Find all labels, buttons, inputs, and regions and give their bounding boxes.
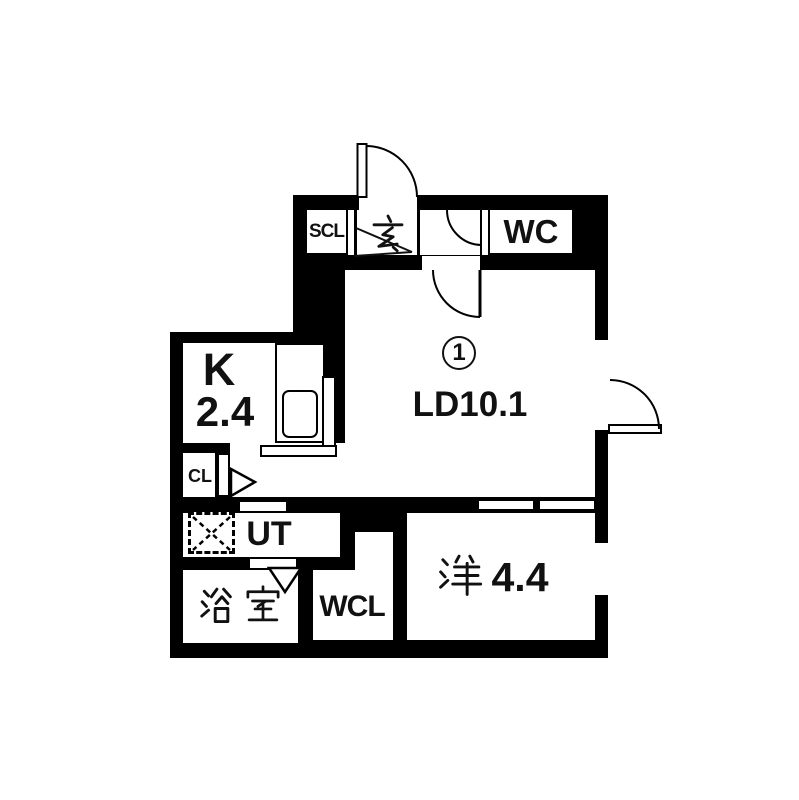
western-window bbox=[595, 541, 608, 597]
room-walk-in-closet-upper bbox=[355, 532, 393, 572]
kitchen-area: 2.4 bbox=[190, 388, 260, 436]
utility-door bbox=[238, 500, 288, 513]
western-kanji-label: 洋 bbox=[0, 0, 1, 1]
kitchen-sink-icon bbox=[282, 390, 318, 438]
western-area: 4.4 bbox=[480, 556, 560, 598]
walk-in-closet-label: WCL bbox=[313, 589, 391, 625]
kitchen-letter: K bbox=[196, 344, 242, 394]
entrance-door-swing-icon bbox=[358, 144, 418, 197]
floor-plan: SCL 玄 WC 1 LD10.1 K 2.4 CL UT 浴室 WCL 洋 4… bbox=[0, 0, 799, 800]
unit-number-badge: 1 bbox=[442, 336, 476, 370]
utility-label: UT bbox=[238, 513, 300, 555]
room-bathroom bbox=[183, 570, 298, 643]
sliding-door-panel-1 bbox=[477, 499, 535, 511]
hall-to-ld-opening bbox=[422, 256, 480, 270]
shoes-closet-label: SCL bbox=[307, 210, 346, 253]
entrance-hall bbox=[420, 210, 480, 255]
unit-number: 1 bbox=[452, 339, 465, 367]
closet-door bbox=[217, 453, 230, 497]
balcony-door-swing-icon bbox=[609, 380, 661, 433]
wc-door-frame bbox=[480, 210, 490, 255]
wc-label: WC bbox=[490, 210, 572, 253]
living-dining-label: LD10.1 bbox=[395, 384, 545, 424]
balcony-door-opening bbox=[595, 338, 608, 432]
shoes-closet-door bbox=[346, 210, 356, 255]
sliding-door-panel-2 bbox=[538, 499, 596, 511]
bathroom-label: 浴室 bbox=[0, 0, 1, 1]
genkan-label: 玄 bbox=[0, 0, 1, 1]
closet-label: CL bbox=[183, 462, 217, 490]
entrance-door-opening bbox=[359, 195, 417, 210]
room-genkan bbox=[357, 210, 417, 255]
washing-machine-area-icon bbox=[188, 512, 235, 554]
bathroom-door bbox=[248, 557, 298, 570]
kitchen-counter-edge-h bbox=[260, 445, 337, 457]
